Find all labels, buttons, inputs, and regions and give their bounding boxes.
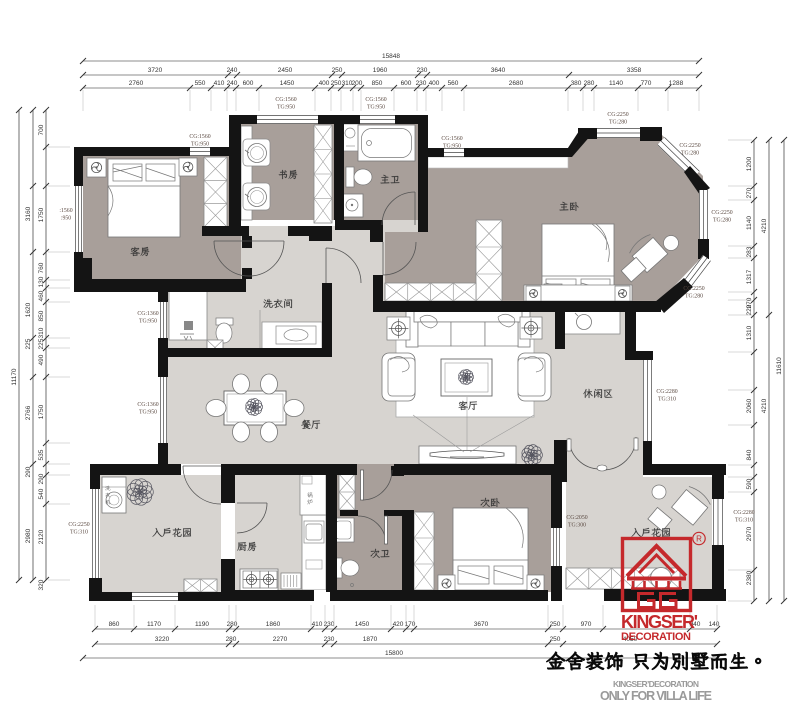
svg-text:CG:2250: CG:2250	[679, 143, 700, 149]
svg-text:2760: 2760	[129, 80, 144, 87]
svg-text:4210: 4210	[761, 398, 768, 413]
svg-text:TG:950: TG:950	[443, 144, 461, 150]
svg-text:1750: 1750	[38, 404, 45, 419]
svg-text:1288: 1288	[669, 80, 684, 87]
svg-text:TG:310: TG:310	[735, 518, 753, 524]
svg-text:380: 380	[571, 80, 582, 87]
svg-text:2766: 2766	[25, 405, 32, 420]
svg-text:290: 290	[25, 466, 32, 477]
svg-text:11170: 11170	[11, 368, 18, 385]
svg-text:TG:310: TG:310	[658, 397, 676, 403]
svg-text:CG:1560: CG:1560	[441, 136, 462, 142]
svg-text:410: 410	[312, 621, 323, 628]
svg-text:3358: 3358	[627, 67, 642, 74]
svg-text:535: 535	[38, 449, 45, 460]
svg-text:CG:1560: CG:1560	[189, 134, 210, 140]
svg-text:4210: 4210	[761, 218, 768, 233]
svg-text:3220: 3220	[155, 636, 170, 643]
svg-text:KINGSER': KINGSER'	[621, 612, 698, 632]
svg-text:TG:280: TG:280	[681, 151, 699, 157]
svg-text:1140: 1140	[609, 80, 623, 87]
svg-text:230: 230	[324, 621, 335, 628]
svg-text:760: 760	[38, 262, 45, 273]
svg-text:3720: 3720	[148, 67, 163, 74]
svg-text:840: 840	[746, 449, 753, 460]
svg-text:230: 230	[416, 80, 427, 87]
svg-text:3640: 3640	[491, 67, 506, 74]
svg-text:TG:300: TG:300	[568, 523, 586, 529]
svg-text:2120: 2120	[38, 529, 45, 544]
svg-text:130: 130	[38, 276, 45, 287]
svg-text:600: 600	[401, 80, 412, 87]
svg-text:TG:950: TG:950	[277, 105, 295, 111]
svg-text:CG:2280: CG:2280	[733, 510, 754, 516]
svg-text:220: 220	[746, 304, 753, 315]
svg-text:230: 230	[324, 636, 335, 643]
svg-text:400: 400	[429, 80, 440, 87]
svg-text:590: 590	[746, 478, 753, 489]
svg-text:CG:1360: CG:1360	[137, 402, 158, 408]
svg-text:225: 225	[25, 338, 32, 349]
svg-text:225: 225	[38, 338, 45, 349]
svg-text:1750: 1750	[38, 207, 45, 222]
svg-text:TG:950: TG:950	[139, 410, 157, 416]
svg-text:1317: 1317	[746, 269, 753, 284]
svg-text:CG:1560: CG:1560	[365, 97, 386, 103]
svg-text:250: 250	[332, 67, 343, 74]
svg-text:TG:310: TG:310	[70, 530, 88, 536]
svg-text:460: 460	[38, 290, 45, 301]
svg-text:TG:280: TG:280	[713, 218, 731, 224]
svg-text:1140: 1140	[746, 216, 753, 230]
svg-text:2980: 2980	[25, 528, 32, 543]
svg-text:3160: 3160	[25, 206, 32, 221]
svg-text:2970: 2970	[746, 526, 753, 541]
svg-text:TG:950: TG:950	[367, 105, 385, 111]
svg-text:KINGSER’DECORATION: KINGSER’DECORATION	[613, 679, 699, 689]
svg-text:15848: 15848	[382, 53, 400, 60]
svg-text:270: 270	[746, 187, 753, 198]
svg-text:240: 240	[227, 67, 238, 74]
svg-text:280: 280	[226, 636, 237, 643]
svg-text:250: 250	[550, 636, 561, 643]
svg-text:860: 860	[109, 621, 120, 628]
svg-text:850: 850	[38, 310, 45, 321]
svg-text:700: 700	[38, 124, 45, 135]
svg-text:2450: 2450	[278, 67, 293, 74]
svg-text:140: 140	[709, 621, 720, 628]
svg-text:1870: 1870	[363, 636, 378, 643]
svg-text:2060: 2060	[746, 398, 753, 413]
svg-text:420: 420	[393, 621, 404, 628]
svg-text:290: 290	[38, 473, 45, 484]
svg-text:2380: 2380	[746, 570, 753, 585]
svg-text:15800: 15800	[385, 650, 403, 657]
svg-text:1200: 1200	[746, 156, 753, 171]
svg-text:240: 240	[227, 80, 238, 87]
svg-text:CG:2280: CG:2280	[656, 389, 677, 395]
svg-text:600: 600	[243, 80, 254, 87]
svg-text:2680: 2680	[509, 80, 524, 87]
svg-text:3670: 3670	[474, 621, 489, 628]
svg-text:TG:280: TG:280	[609, 120, 627, 126]
svg-text:280: 280	[584, 80, 595, 87]
svg-text:560: 560	[448, 80, 459, 87]
svg-text:1960: 1960	[373, 67, 388, 74]
svg-text:410: 410	[214, 80, 225, 87]
svg-text:490: 490	[38, 354, 45, 365]
svg-text:320: 320	[38, 579, 45, 590]
svg-text:CG:2250: CG:2250	[711, 210, 732, 216]
svg-text:400: 400	[319, 80, 330, 87]
svg-text:770: 770	[641, 80, 652, 87]
svg-text:2270: 2270	[273, 636, 288, 643]
svg-text:1170: 1170	[147, 621, 161, 628]
svg-text:230: 230	[417, 67, 428, 74]
svg-text:DECORATION: DECORATION	[621, 631, 691, 643]
svg-text:TG:280: TG:280	[685, 294, 703, 300]
svg-text:R: R	[696, 535, 702, 544]
svg-text:850: 850	[372, 80, 383, 87]
svg-text:TG:950: TG:950	[139, 319, 157, 325]
svg-text:CG:2250: CG:2250	[683, 286, 704, 292]
svg-text:ONLY FOR VILLA LIFE: ONLY FOR VILLA LIFE	[600, 689, 712, 703]
svg-text:CG:1360: CG:1360	[137, 311, 158, 317]
svg-text:1620: 1620	[25, 302, 32, 317]
svg-text:CG:2250: CG:2250	[607, 112, 628, 118]
svg-text:550: 550	[195, 80, 206, 87]
svg-text:1860: 1860	[266, 621, 281, 628]
svg-text:283: 283	[746, 246, 753, 257]
svg-text:1450: 1450	[280, 80, 295, 87]
svg-text:200: 200	[352, 80, 363, 87]
svg-text:250: 250	[550, 621, 561, 628]
svg-text:540: 540	[38, 488, 45, 499]
svg-text:11610: 11610	[776, 357, 783, 375]
svg-text:1190: 1190	[195, 621, 209, 628]
svg-text:310: 310	[38, 327, 45, 338]
svg-text:CG:2050: CG:2050	[566, 515, 587, 521]
svg-text:250: 250	[331, 80, 342, 87]
svg-text:CG:1560: CG:1560	[275, 97, 296, 103]
svg-text:970: 970	[581, 621, 592, 628]
svg-text:1450: 1450	[355, 621, 370, 628]
svg-text:TG:950: TG:950	[191, 142, 209, 148]
svg-text::950: :950	[61, 216, 71, 222]
svg-text::1560: :1560	[59, 208, 72, 214]
svg-text:CG:2250: CG:2250	[68, 522, 89, 528]
svg-text:1310: 1310	[746, 325, 753, 340]
